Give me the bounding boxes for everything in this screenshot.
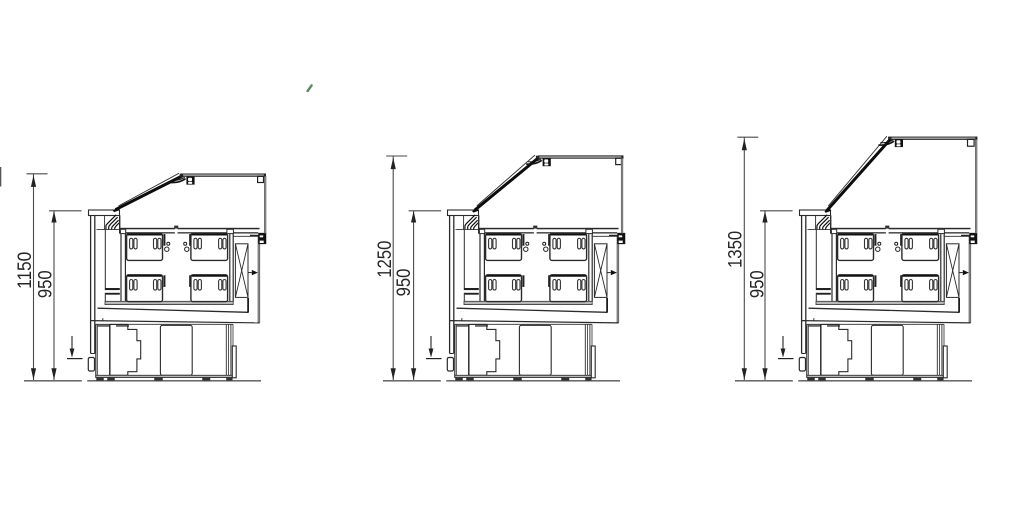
svg-text:950: 950 bbox=[393, 268, 415, 296]
svg-text:1150: 1150 bbox=[14, 252, 36, 289]
svg-text:950: 950 bbox=[747, 270, 769, 298]
svg-text:1350: 1350 bbox=[724, 231, 746, 268]
svg-text:950: 950 bbox=[34, 270, 56, 298]
